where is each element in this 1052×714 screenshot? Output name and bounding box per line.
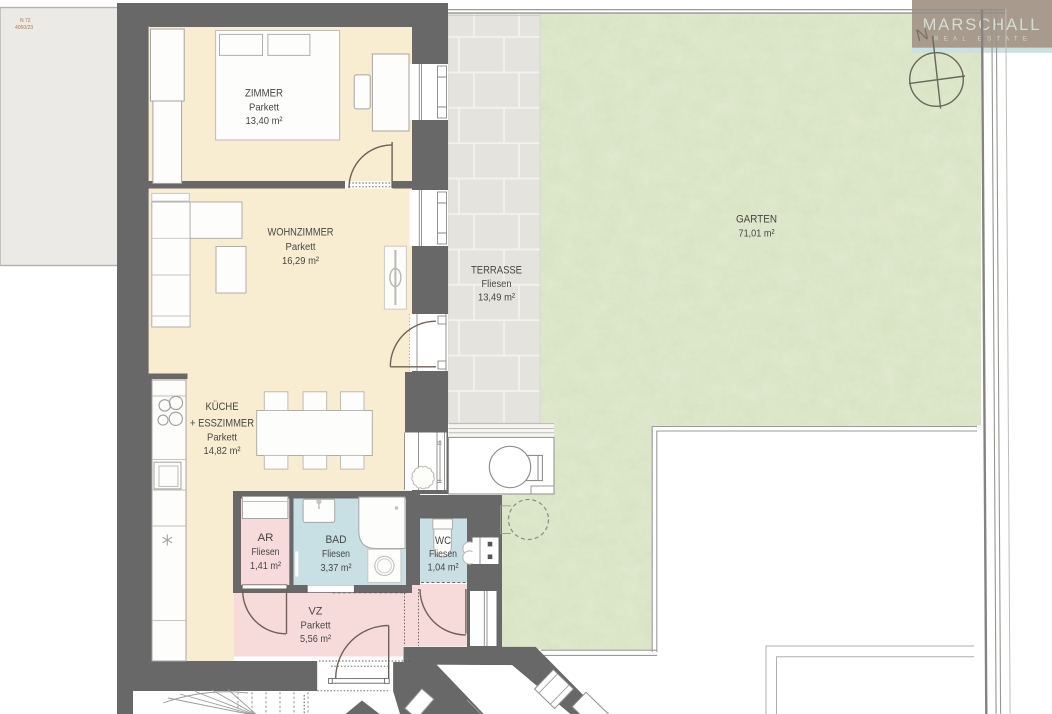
svg-text:Parkett: Parkett — [301, 620, 331, 632]
svg-text:Parkett: Parkett — [249, 102, 279, 114]
svg-text:GARTEN: GARTEN — [736, 214, 777, 226]
svg-text:Parkett: Parkett — [207, 432, 237, 444]
svg-text:TERRASSE: TERRASSE — [471, 265, 522, 277]
svg-text:Fliesen: Fliesen — [252, 546, 280, 558]
svg-text:13,49 m²: 13,49 m² — [478, 292, 515, 304]
svg-text:Fliesen: Fliesen — [322, 548, 350, 560]
svg-text:WC: WC — [435, 535, 451, 547]
svg-text:1,04 m²: 1,04 m² — [428, 562, 459, 574]
svg-text:1,41 m²: 1,41 m² — [250, 560, 281, 572]
svg-text:ZIMMER: ZIMMER — [245, 88, 283, 100]
svg-text:VZ: VZ — [309, 606, 323, 618]
svg-text:Parkett: Parkett — [286, 241, 316, 253]
svg-text:5,56 m²: 5,56 m² — [300, 633, 331, 645]
svg-text:N 72: N 72 — [20, 18, 31, 24]
svg-text:Fliesen: Fliesen — [482, 278, 512, 290]
svg-text:14,82 m²: 14,82 m² — [204, 445, 241, 457]
svg-text:+ ESSZIMMER: + ESSZIMMER — [190, 418, 254, 430]
svg-text:16,29 m²: 16,29 m² — [282, 255, 319, 267]
svg-text:3,37 m²: 3,37 m² — [321, 562, 352, 574]
svg-text:13,40 m²: 13,40 m² — [246, 115, 283, 127]
svg-text:WOHNZIMMER: WOHNZIMMER — [268, 227, 334, 239]
svg-text:BAD: BAD — [326, 534, 347, 546]
svg-text:71,01 m²: 71,01 m² — [739, 228, 775, 240]
svg-text:Fliesen: Fliesen — [429, 548, 457, 560]
svg-text:KÜCHE: KÜCHE — [206, 401, 239, 413]
svg-text:AR: AR — [258, 532, 274, 544]
svg-text:4050/23: 4050/23 — [15, 25, 33, 31]
